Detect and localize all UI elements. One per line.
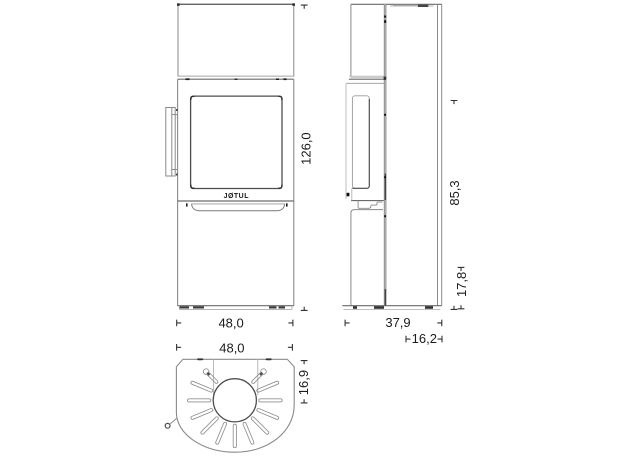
svg-text:16,2: 16,2 [412,331,437,346]
svg-text:48,0: 48,0 [219,340,244,355]
svg-text:37,9: 37,9 [385,315,410,330]
svg-text:48,0: 48,0 [218,315,243,330]
svg-text:126,0: 126,0 [299,132,314,165]
svg-text:16,9: 16,9 [296,370,311,395]
svg-text:17,8: 17,8 [454,272,469,297]
svg-text:JØTUL: JØTUL [224,193,250,200]
svg-text:85,3: 85,3 [447,180,462,205]
